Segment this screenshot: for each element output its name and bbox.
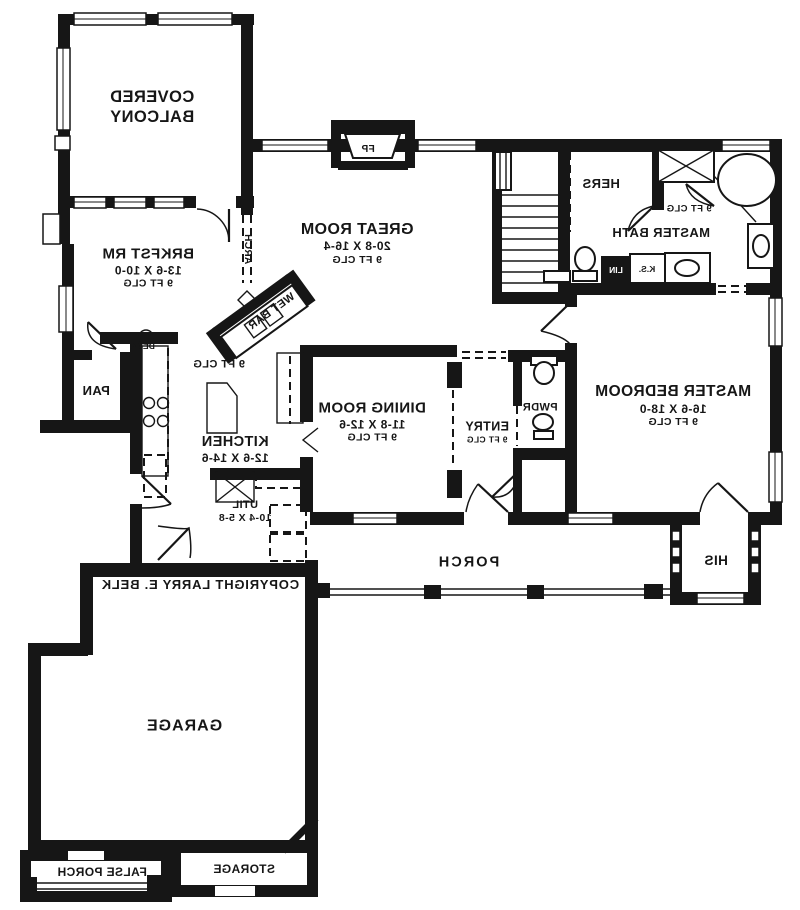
- kitchen-island: [207, 383, 237, 433]
- toilet-bath: [575, 247, 595, 271]
- balcony-door: [197, 209, 229, 242]
- brkfst-clg: 9 FT CLG: [102, 278, 194, 291]
- great-room-name: GREAT ROOM: [300, 220, 413, 239]
- kitchen-name: KITCHEN: [201, 434, 268, 451]
- label-great-room: GREAT ROOM 20-8 X 16-4 9 FT CLG: [300, 220, 413, 266]
- master-bedroom-name: MASTER BEDROOM: [595, 383, 751, 402]
- dining-dims: 11-8 X 12-6: [318, 418, 426, 432]
- label-dining: DINING ROOM 11-8 X 12-6 9 FT CLG: [318, 400, 426, 445]
- label-garage: GARAGE: [146, 716, 222, 735]
- sink: [675, 260, 699, 276]
- bath-shelf: [544, 271, 570, 282]
- door-openings: [68, 196, 748, 896]
- cased-opening-marker: [303, 428, 318, 452]
- utility-name: UTIL: [218, 499, 271, 512]
- tub: [718, 154, 776, 206]
- label-utility: UTIL 10-4 X 5-8: [218, 499, 271, 525]
- cooktop-burner: [144, 416, 155, 427]
- walls: [20, 14, 782, 902]
- brkfst-name: BRKFST RM: [102, 246, 194, 264]
- label-false-porch: FALSE PORCH: [57, 865, 147, 879]
- cooktop-burner: [144, 398, 155, 409]
- label-entry: ENTRY 9 FT CLG: [465, 419, 509, 444]
- cooktop-burner: [158, 398, 169, 409]
- label-copyright: COPYRIGHT LARRY E. BELK: [101, 577, 299, 593]
- label-knee-space: K.S.: [639, 264, 656, 274]
- label-linen: LIN: [609, 265, 623, 275]
- utility-dims: 10-4 X 5-8: [218, 512, 271, 525]
- label-brkfst: BRKFST RM 13-6 X 10-0 9 FT CLG: [102, 246, 194, 291]
- master-bedroom-clg: 9 FT CLG: [595, 416, 751, 429]
- garage-door: [158, 526, 191, 560]
- master-bedroom-dims: 16-6 X 18-0: [595, 402, 751, 416]
- label-master-bedroom: MASTER BEDROOM 16-6 X 18-0 9 FT CLG: [595, 383, 751, 429]
- dryer: [270, 534, 306, 561]
- label-porch: PORCH: [437, 554, 499, 571]
- great-room-clg: 9 FT CLG: [300, 253, 413, 266]
- label-kitchen: KITCHEN 12-6 X 14-6: [201, 434, 268, 466]
- dining-clg: 9 FT CLG: [318, 432, 426, 445]
- label-hers-closet: HERS: [582, 176, 620, 192]
- label-bath-clg: 9 FT CLG: [666, 203, 711, 214]
- label-desk: DESK: [131, 341, 155, 351]
- label-fireplace: FP: [361, 144, 375, 156]
- great-room-dims: 20-8 X 16-4: [300, 239, 413, 253]
- label-pantry: PAN: [82, 383, 110, 399]
- sink-right: [753, 235, 769, 257]
- bedroom-door: [541, 303, 570, 344]
- label-powder: PWDR: [522, 401, 557, 414]
- entry-clg: 9 FT CLG: [465, 434, 509, 444]
- label-his-closet: HIS: [704, 553, 728, 569]
- his-closet-door: [700, 483, 748, 512]
- stairs: [495, 152, 558, 283]
- label-storage: STORAGE: [213, 862, 275, 876]
- label-kitchen-clg: 9 FT CLG: [193, 358, 245, 371]
- floor-plan-drawing: [0, 0, 800, 910]
- floor-plan: COVERED BALCONY GREAT ROOM 20-8 X 16-4 9…: [0, 0, 800, 910]
- kitchen-dims: 12-6 X 14-6: [201, 452, 268, 466]
- dining-name: DINING ROOM: [318, 400, 426, 418]
- cooktop-burner: [158, 416, 169, 427]
- kitchen-counter: [142, 346, 168, 476]
- brkfst-dims: 13-6 X 10-0: [102, 264, 194, 278]
- toilet-pwdr: [534, 362, 554, 384]
- sink-pwdr: [533, 414, 553, 430]
- label-arch: ARCH: [241, 234, 253, 265]
- label-master-bath: MASTER BATH: [612, 225, 710, 241]
- shower: [658, 150, 714, 182]
- entry-name: ENTRY: [465, 419, 509, 434]
- label-covered-balcony: COVERED BALCONY: [87, 88, 217, 128]
